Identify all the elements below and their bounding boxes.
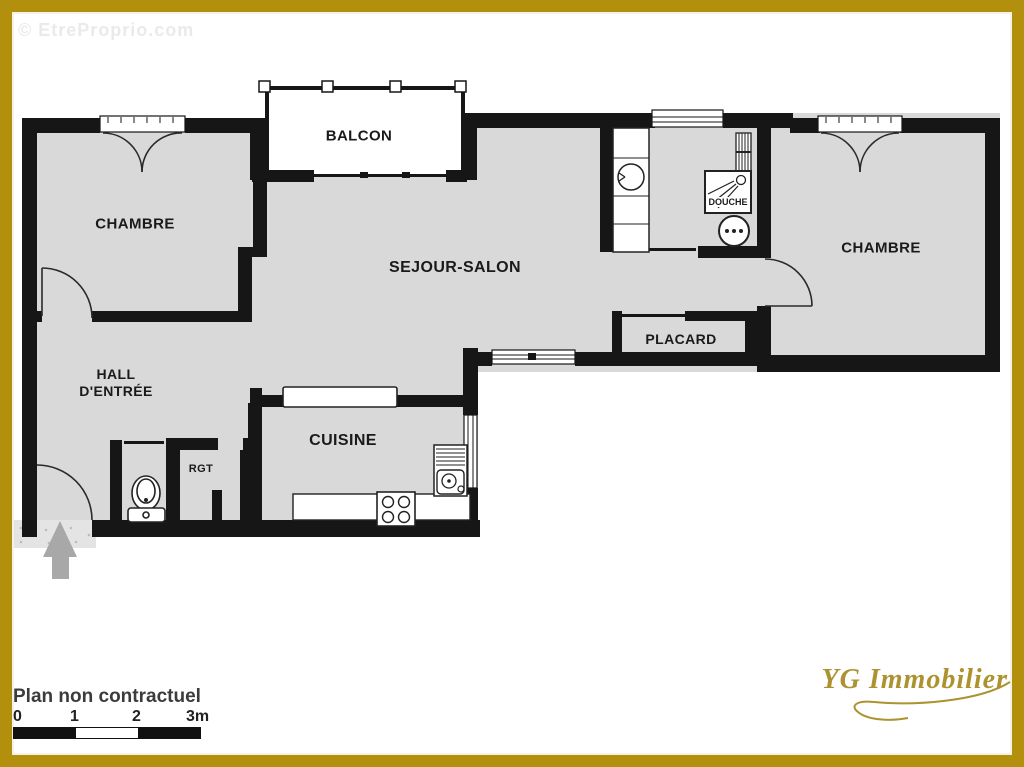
scale-bar-segment-1 [14,728,76,738]
room-label-bedroom-left: CHAMBRE [95,216,174,233]
washing-machine-icon [719,216,749,246]
scale-tick-0: 0 [13,708,22,726]
watermark: © EtreProprio.com [18,20,194,41]
room-label-shower: DOUCHE [707,197,748,207]
scale-bar [13,727,201,739]
washbasin-icon [618,164,644,190]
room-label-hall: HALL D'ENTRÉE [79,366,152,400]
disclaimer-text: Plan non contractuel [13,686,201,708]
kitchen-sink-icon [434,445,467,496]
room-label-closet: PLACARD [645,331,716,347]
hall-label-line2: D'ENTRÉE [79,383,152,400]
hall-label-line1: HALL [79,366,152,383]
scale-bar-segment-3 [138,728,200,738]
floorplan-page: © EtreProprio.com BALCON CHAMBRE SEJOUR-… [0,0,1024,767]
room-label-balcony: BALCON [326,128,393,145]
window-tick [528,353,536,360]
room-label-kitchen: CUISINE [309,432,377,450]
stove-icon [377,492,415,526]
scale-bar-segment-2 [76,728,138,738]
room-label-storage: RGT [189,463,213,475]
room-label-bedroom-right: CHAMBRE [841,240,920,257]
room-label-living: SEJOUR-SALON [389,259,521,277]
agency-logo: YG Immobilier [822,664,1008,696]
scale-tick-2: 2 [132,708,141,726]
radiator-icon [736,133,751,171]
serving-hatch [283,387,397,407]
scale-tick-1: 1 [70,708,79,726]
scale-tick-3: 3m [186,708,209,726]
floorplan-drawing [0,0,1024,767]
